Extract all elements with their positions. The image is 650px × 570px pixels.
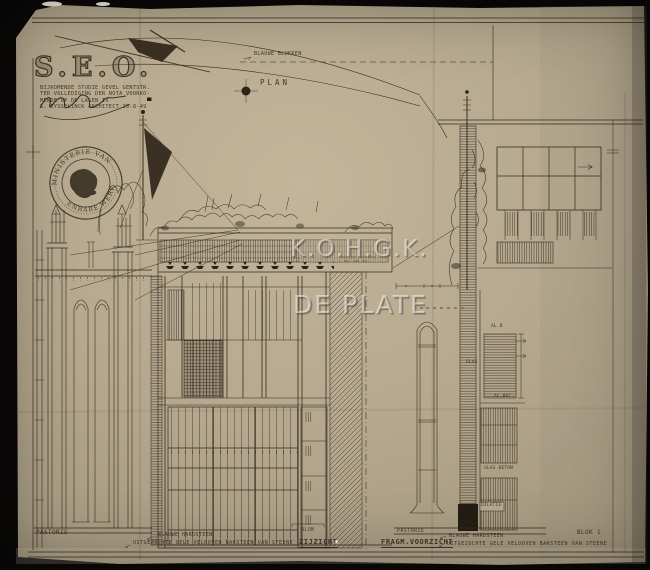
drawing-title: S.E.O. bbox=[34, 52, 153, 83]
note-line: TER VOLLEDIGING der NOTA VOORKO- bbox=[40, 91, 150, 97]
dentil-row bbox=[162, 262, 334, 269]
note-line: G. EYSSELINCK ARCHITECT 20-8-49 bbox=[40, 104, 150, 110]
blauwe-blokken-annotation: BLAUWE BLOKKEN bbox=[254, 51, 302, 57]
glas-beton-label: GLAS BETON bbox=[484, 466, 513, 471]
fragm-voorzicht-label: FRAGM.VOORZICHT bbox=[381, 538, 453, 548]
photographed-drawing: MINISTERIE VAN OPENBARE WERKEN S.E.O. BI… bbox=[0, 0, 650, 570]
material-note: BLAUWE HARDSTEEN bbox=[449, 533, 504, 539]
blok-label: BLOK bbox=[301, 527, 315, 533]
hardstone-base bbox=[458, 504, 478, 531]
al-bat-label: AL.BAT. bbox=[494, 394, 514, 399]
window-detail-lower bbox=[481, 408, 517, 463]
glas-label: GLAS bbox=[466, 360, 478, 365]
material-note: BLAUWE HARDSTEEN bbox=[158, 532, 213, 538]
material-note: UITGEZOCHTE GELE VELDOVEN BAKSTEEN VAN S… bbox=[447, 541, 607, 547]
watermark-de-plate: DE PLATE bbox=[293, 290, 428, 319]
dilatie-label: DILATIE bbox=[481, 503, 501, 508]
material-note: UITGEZOCHTE GELE VELDOVEN BAKSTEEN VAN S… bbox=[133, 540, 293, 546]
al-b-label: AL.B bbox=[491, 324, 503, 329]
pastorie-left-label: PASTORIE bbox=[36, 529, 68, 536]
watermark-kohgk: K.O.H.G.K. bbox=[290, 236, 429, 262]
zijzicht-label: ZIJZICHT bbox=[299, 538, 338, 548]
hatched-panel bbox=[184, 340, 222, 397]
plan-label: PLAN bbox=[260, 78, 290, 87]
brick-pier bbox=[460, 126, 476, 504]
drawing-notes: BIJKOMENDE STUDIE GEVEL GENTSTR. TER VOL… bbox=[40, 85, 150, 111]
pastorie-right-label: PASTORIE bbox=[397, 528, 424, 534]
blok1-label: BLOK 1 bbox=[577, 529, 601, 536]
